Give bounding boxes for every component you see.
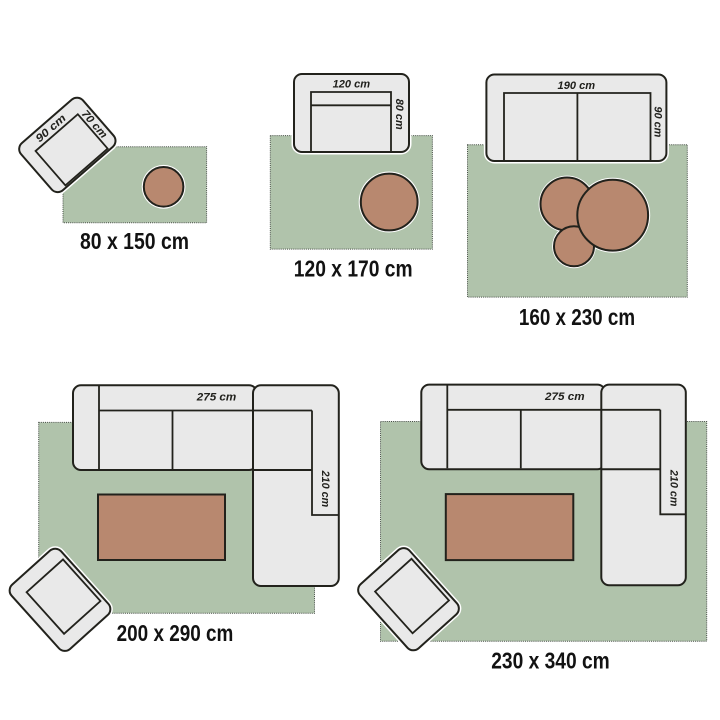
svg-text:190 cm: 190 cm [558, 80, 596, 92]
svg-text:210 cm: 210 cm [667, 469, 679, 507]
svg-text:80 cm: 80 cm [393, 99, 405, 130]
svg-text:80 x 150 cm: 80 x 150 cm [80, 228, 189, 254]
svg-text:200 x 290 cm: 200 x 290 cm [117, 620, 234, 646]
svg-text:275 cm: 275 cm [196, 392, 237, 404]
svg-text:160 x 230 cm: 160 x 230 cm [519, 304, 635, 330]
svg-text:275 cm: 275 cm [544, 391, 585, 403]
svg-text:230 x 340 cm: 230 x 340 cm [491, 648, 610, 674]
svg-text:90 cm: 90 cm [651, 106, 663, 137]
svg-text:120 x 170 cm: 120 x 170 cm [294, 256, 413, 282]
svg-text:210 cm: 210 cm [319, 470, 331, 508]
svg-text:120 cm: 120 cm [333, 79, 371, 91]
